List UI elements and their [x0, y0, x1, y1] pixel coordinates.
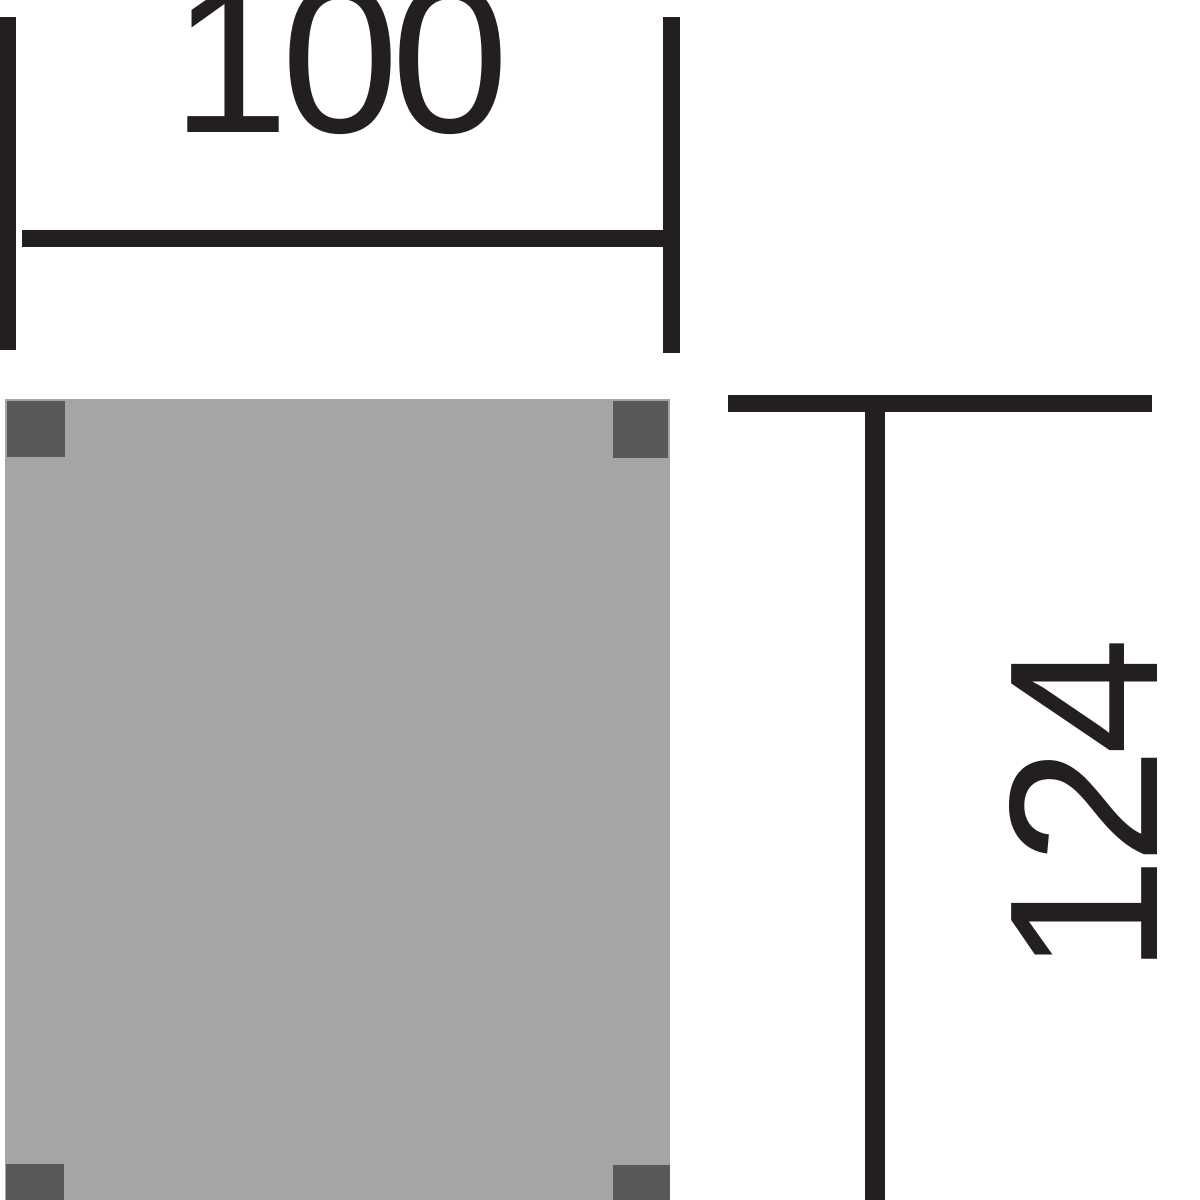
height-dimension-line	[865, 412, 885, 1200]
corner-post-bottom-right	[613, 1165, 670, 1200]
plan-panel	[5, 399, 670, 1200]
corner-post-top-left	[7, 401, 65, 457]
width-dimension-line	[22, 230, 663, 247]
corner-post-bottom-left	[6, 1164, 64, 1200]
technical-drawing: 100 124	[0, 0, 1200, 1200]
height-dimension-label: 124	[978, 645, 1190, 975]
corner-post-top-right	[613, 401, 668, 458]
width-extension-line-right	[663, 17, 680, 353]
width-extension-line-left	[0, 17, 16, 350]
width-dimension-label: 100	[171, 0, 501, 165]
height-extension-line-top	[728, 395, 1152, 412]
